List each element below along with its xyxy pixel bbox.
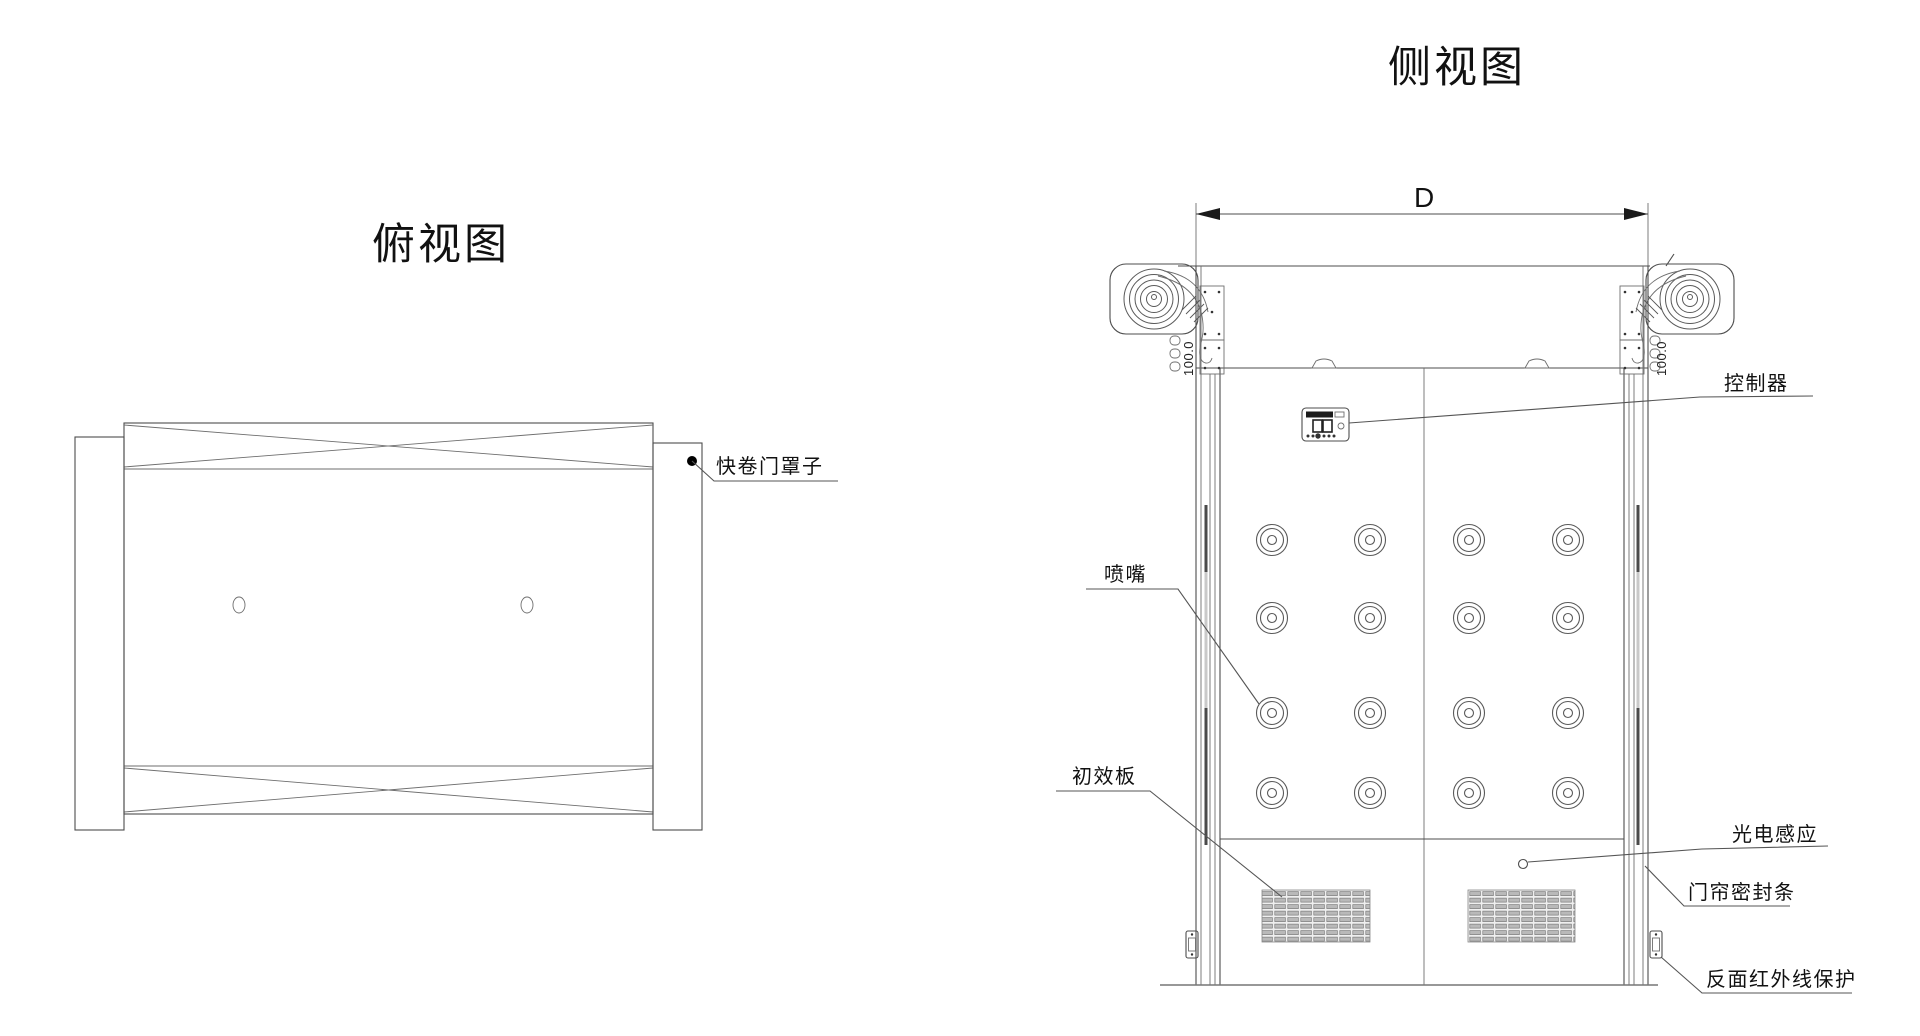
top-view-title: 俯视图 <box>372 221 510 269</box>
nozzle <box>1454 698 1485 729</box>
dim-arrow-left <box>1196 208 1220 220</box>
roller-spool-right <box>1632 264 1734 363</box>
rail-dim-left: 100.0 <box>1181 341 1196 376</box>
controller-brand-strip <box>1306 412 1333 418</box>
primary-filter-leader <box>1056 791 1282 897</box>
nozzle <box>1355 603 1386 634</box>
width-dimension: D <box>1196 182 1648 300</box>
nozzle <box>1454 778 1485 809</box>
nozzle <box>1454 603 1485 634</box>
photo-sensor-leader <box>1528 846 1828 862</box>
door-cover-label: 快卷门罩子 <box>716 455 824 478</box>
dim-arrow-right <box>1624 208 1648 220</box>
roller-spool-left <box>1110 264 1212 363</box>
controller-label: 控制器 <box>1724 372 1789 395</box>
photo-sensor-label: 光电感应 <box>1732 823 1818 846</box>
curtain-seal-label: 门帘密封条 <box>1688 881 1796 904</box>
nozzle <box>1553 698 1584 729</box>
drawing-canvas: 俯视图 快卷门罩子 侧视图 D <box>0 0 1920 1036</box>
filter-grille-left <box>1262 890 1370 942</box>
photo-sensor-dot <box>1519 860 1528 869</box>
left-flange <box>75 437 124 830</box>
bracket-bolts-left <box>1204 291 1221 370</box>
controller-digit-1 <box>1313 420 1322 432</box>
latch-right <box>1650 931 1662 958</box>
nozzle <box>1454 525 1485 556</box>
nozzle <box>1355 698 1386 729</box>
nozzle <box>1355 525 1386 556</box>
nozzle <box>1553 778 1584 809</box>
nozzle <box>1553 525 1584 556</box>
side-view-title: 侧视图 <box>1388 44 1526 92</box>
bracket-bolts-right <box>1624 291 1641 370</box>
rail-dim-right: 100.0 <box>1654 341 1669 376</box>
primary-filter-label: 初效板 <box>1072 765 1137 788</box>
nozzle <box>1257 698 1288 729</box>
rail-right: 100.0 <box>1620 266 1669 985</box>
nozzle <box>1257 525 1288 556</box>
dim-label: D <box>1414 182 1434 213</box>
controller-digit-2 <box>1323 420 1332 432</box>
nozzle-leader <box>1086 589 1259 704</box>
mounting-hole-left <box>233 597 245 613</box>
controller-leader <box>1349 396 1813 423</box>
controller-unit <box>1302 408 1349 441</box>
mounting-hole-right <box>521 597 533 613</box>
technical-drawing: 俯视图 快卷门罩子 侧视图 D <box>0 0 1920 1036</box>
nozzle <box>1257 778 1288 809</box>
nozzle <box>1553 603 1584 634</box>
controller-buttons <box>1307 433 1336 438</box>
nozzle <box>1355 778 1386 809</box>
nozzle-label: 喷嘴 <box>1104 563 1147 586</box>
rail-left: 100.0 <box>1170 266 1224 985</box>
header-clamp-left <box>1312 359 1336 368</box>
filter-grille-right <box>1468 890 1575 942</box>
right-flange <box>653 443 702 830</box>
belt-hook-right <box>1632 316 1644 363</box>
belt-hook-left <box>1200 316 1212 363</box>
side-view: 侧视图 D <box>1056 44 1857 993</box>
controller-knob <box>1338 423 1344 429</box>
rear-infrared-label: 反面红外线保护 <box>1706 968 1857 991</box>
controller-strip-end <box>1335 412 1344 417</box>
nozzle <box>1257 603 1288 634</box>
nozzle-grid <box>1257 525 1584 809</box>
top-view-body <box>124 423 653 814</box>
header-clamp-right <box>1525 359 1549 368</box>
top-view: 俯视图 快卷门罩子 <box>75 221 838 830</box>
rail-tabs-left <box>1170 336 1180 371</box>
